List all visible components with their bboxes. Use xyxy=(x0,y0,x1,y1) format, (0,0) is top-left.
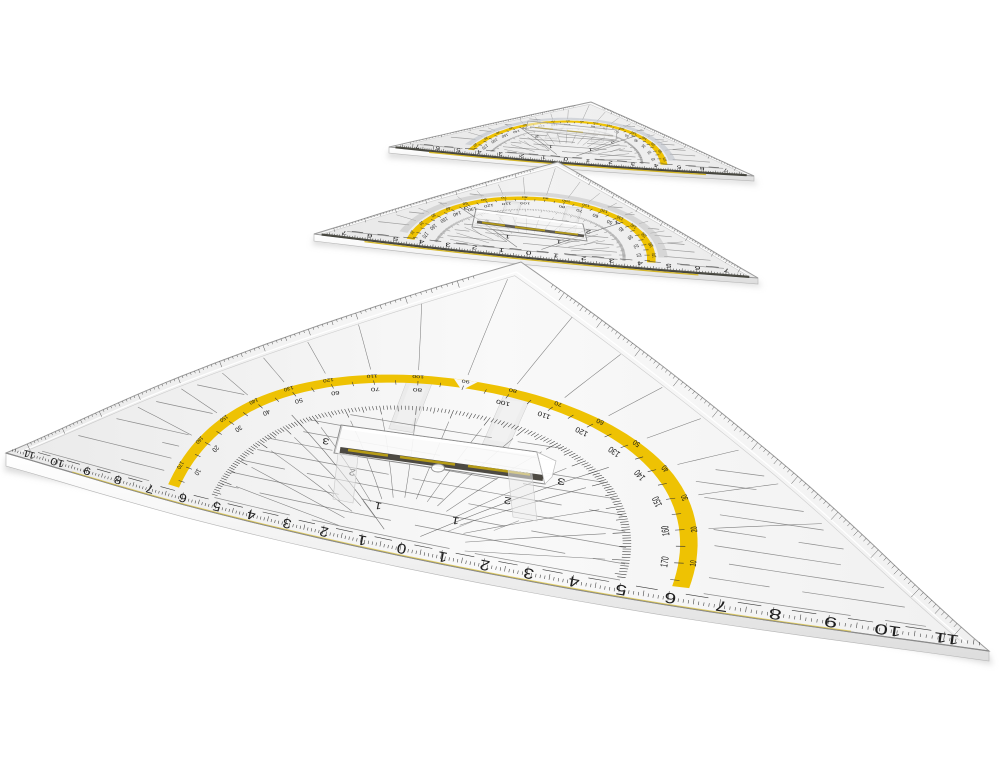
svg-text:1: 1 xyxy=(555,238,562,244)
svg-text:7: 7 xyxy=(723,267,730,274)
svg-text:2: 2 xyxy=(608,159,613,164)
svg-text:2: 2 xyxy=(580,255,587,262)
svg-text:5: 5 xyxy=(456,146,461,152)
svg-text:3: 3 xyxy=(444,241,451,248)
svg-text:2: 2 xyxy=(519,152,524,158)
svg-text:3: 3 xyxy=(556,476,566,488)
svg-text:1: 1 xyxy=(541,154,546,159)
svg-text:90: 90 xyxy=(542,196,549,200)
svg-text:7: 7 xyxy=(415,142,420,148)
svg-text:4: 4 xyxy=(653,163,658,168)
svg-text:170: 170 xyxy=(651,252,658,258)
svg-text:1: 1 xyxy=(498,247,505,254)
svg-text:1: 1 xyxy=(585,158,590,163)
svg-text:0: 0 xyxy=(525,249,532,256)
svg-text:4: 4 xyxy=(418,238,425,245)
svg-text:1: 1 xyxy=(588,147,593,152)
svg-text:6: 6 xyxy=(694,265,701,272)
svg-text:5: 5 xyxy=(676,164,681,169)
svg-text:70: 70 xyxy=(500,196,507,200)
svg-text:100: 100 xyxy=(411,373,424,378)
svg-text:7: 7 xyxy=(723,167,728,172)
svg-text:6: 6 xyxy=(435,144,440,150)
svg-text:1: 1 xyxy=(548,144,553,149)
svg-text:160: 160 xyxy=(658,525,671,537)
svg-text:7: 7 xyxy=(341,229,347,236)
svg-text:2: 2 xyxy=(611,140,615,144)
svg-text:4: 4 xyxy=(636,260,643,267)
svg-text:6: 6 xyxy=(699,166,704,171)
svg-text:80: 80 xyxy=(413,387,423,393)
svg-text:3: 3 xyxy=(498,150,503,156)
svg-text:4: 4 xyxy=(477,148,482,154)
svg-text:3: 3 xyxy=(630,161,635,166)
svg-text:110: 110 xyxy=(366,373,377,378)
svg-text:3: 3 xyxy=(608,257,615,263)
svg-text:170: 170 xyxy=(658,555,672,568)
svg-text:60: 60 xyxy=(330,389,340,396)
svg-text:2: 2 xyxy=(585,229,591,235)
svg-text:80: 80 xyxy=(521,196,528,199)
svg-text:110: 110 xyxy=(501,202,511,206)
svg-text:5: 5 xyxy=(393,235,399,242)
svg-text:1: 1 xyxy=(552,252,559,259)
svg-text:1: 1 xyxy=(505,233,511,239)
svg-text:6: 6 xyxy=(367,232,373,239)
svg-text:100: 100 xyxy=(520,202,531,205)
svg-text:70: 70 xyxy=(370,386,379,392)
svg-text:0: 0 xyxy=(563,156,568,161)
svg-text:5: 5 xyxy=(665,262,672,269)
svg-text:2: 2 xyxy=(471,244,478,251)
